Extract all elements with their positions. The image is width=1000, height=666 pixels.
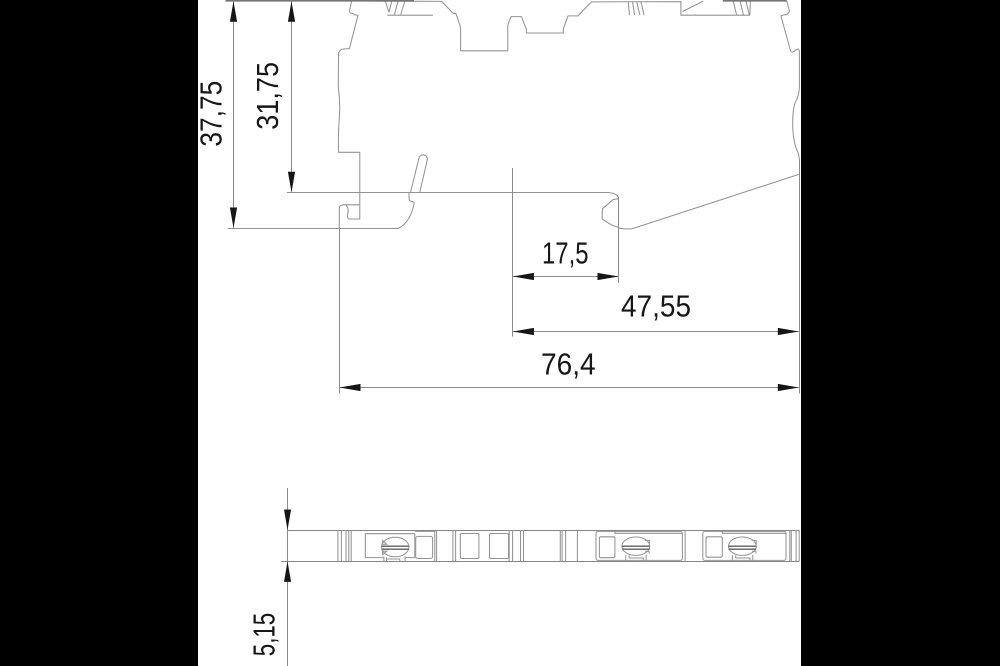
svg-text:47,55: 47,55 [621,289,691,324]
svg-text:5,15: 5,15 [247,613,282,656]
svg-text:76,4: 76,4 [541,347,596,382]
svg-text:31,75: 31,75 [250,62,285,130]
svg-text:17,5: 17,5 [542,236,589,271]
svg-text:37,75: 37,75 [193,81,228,147]
